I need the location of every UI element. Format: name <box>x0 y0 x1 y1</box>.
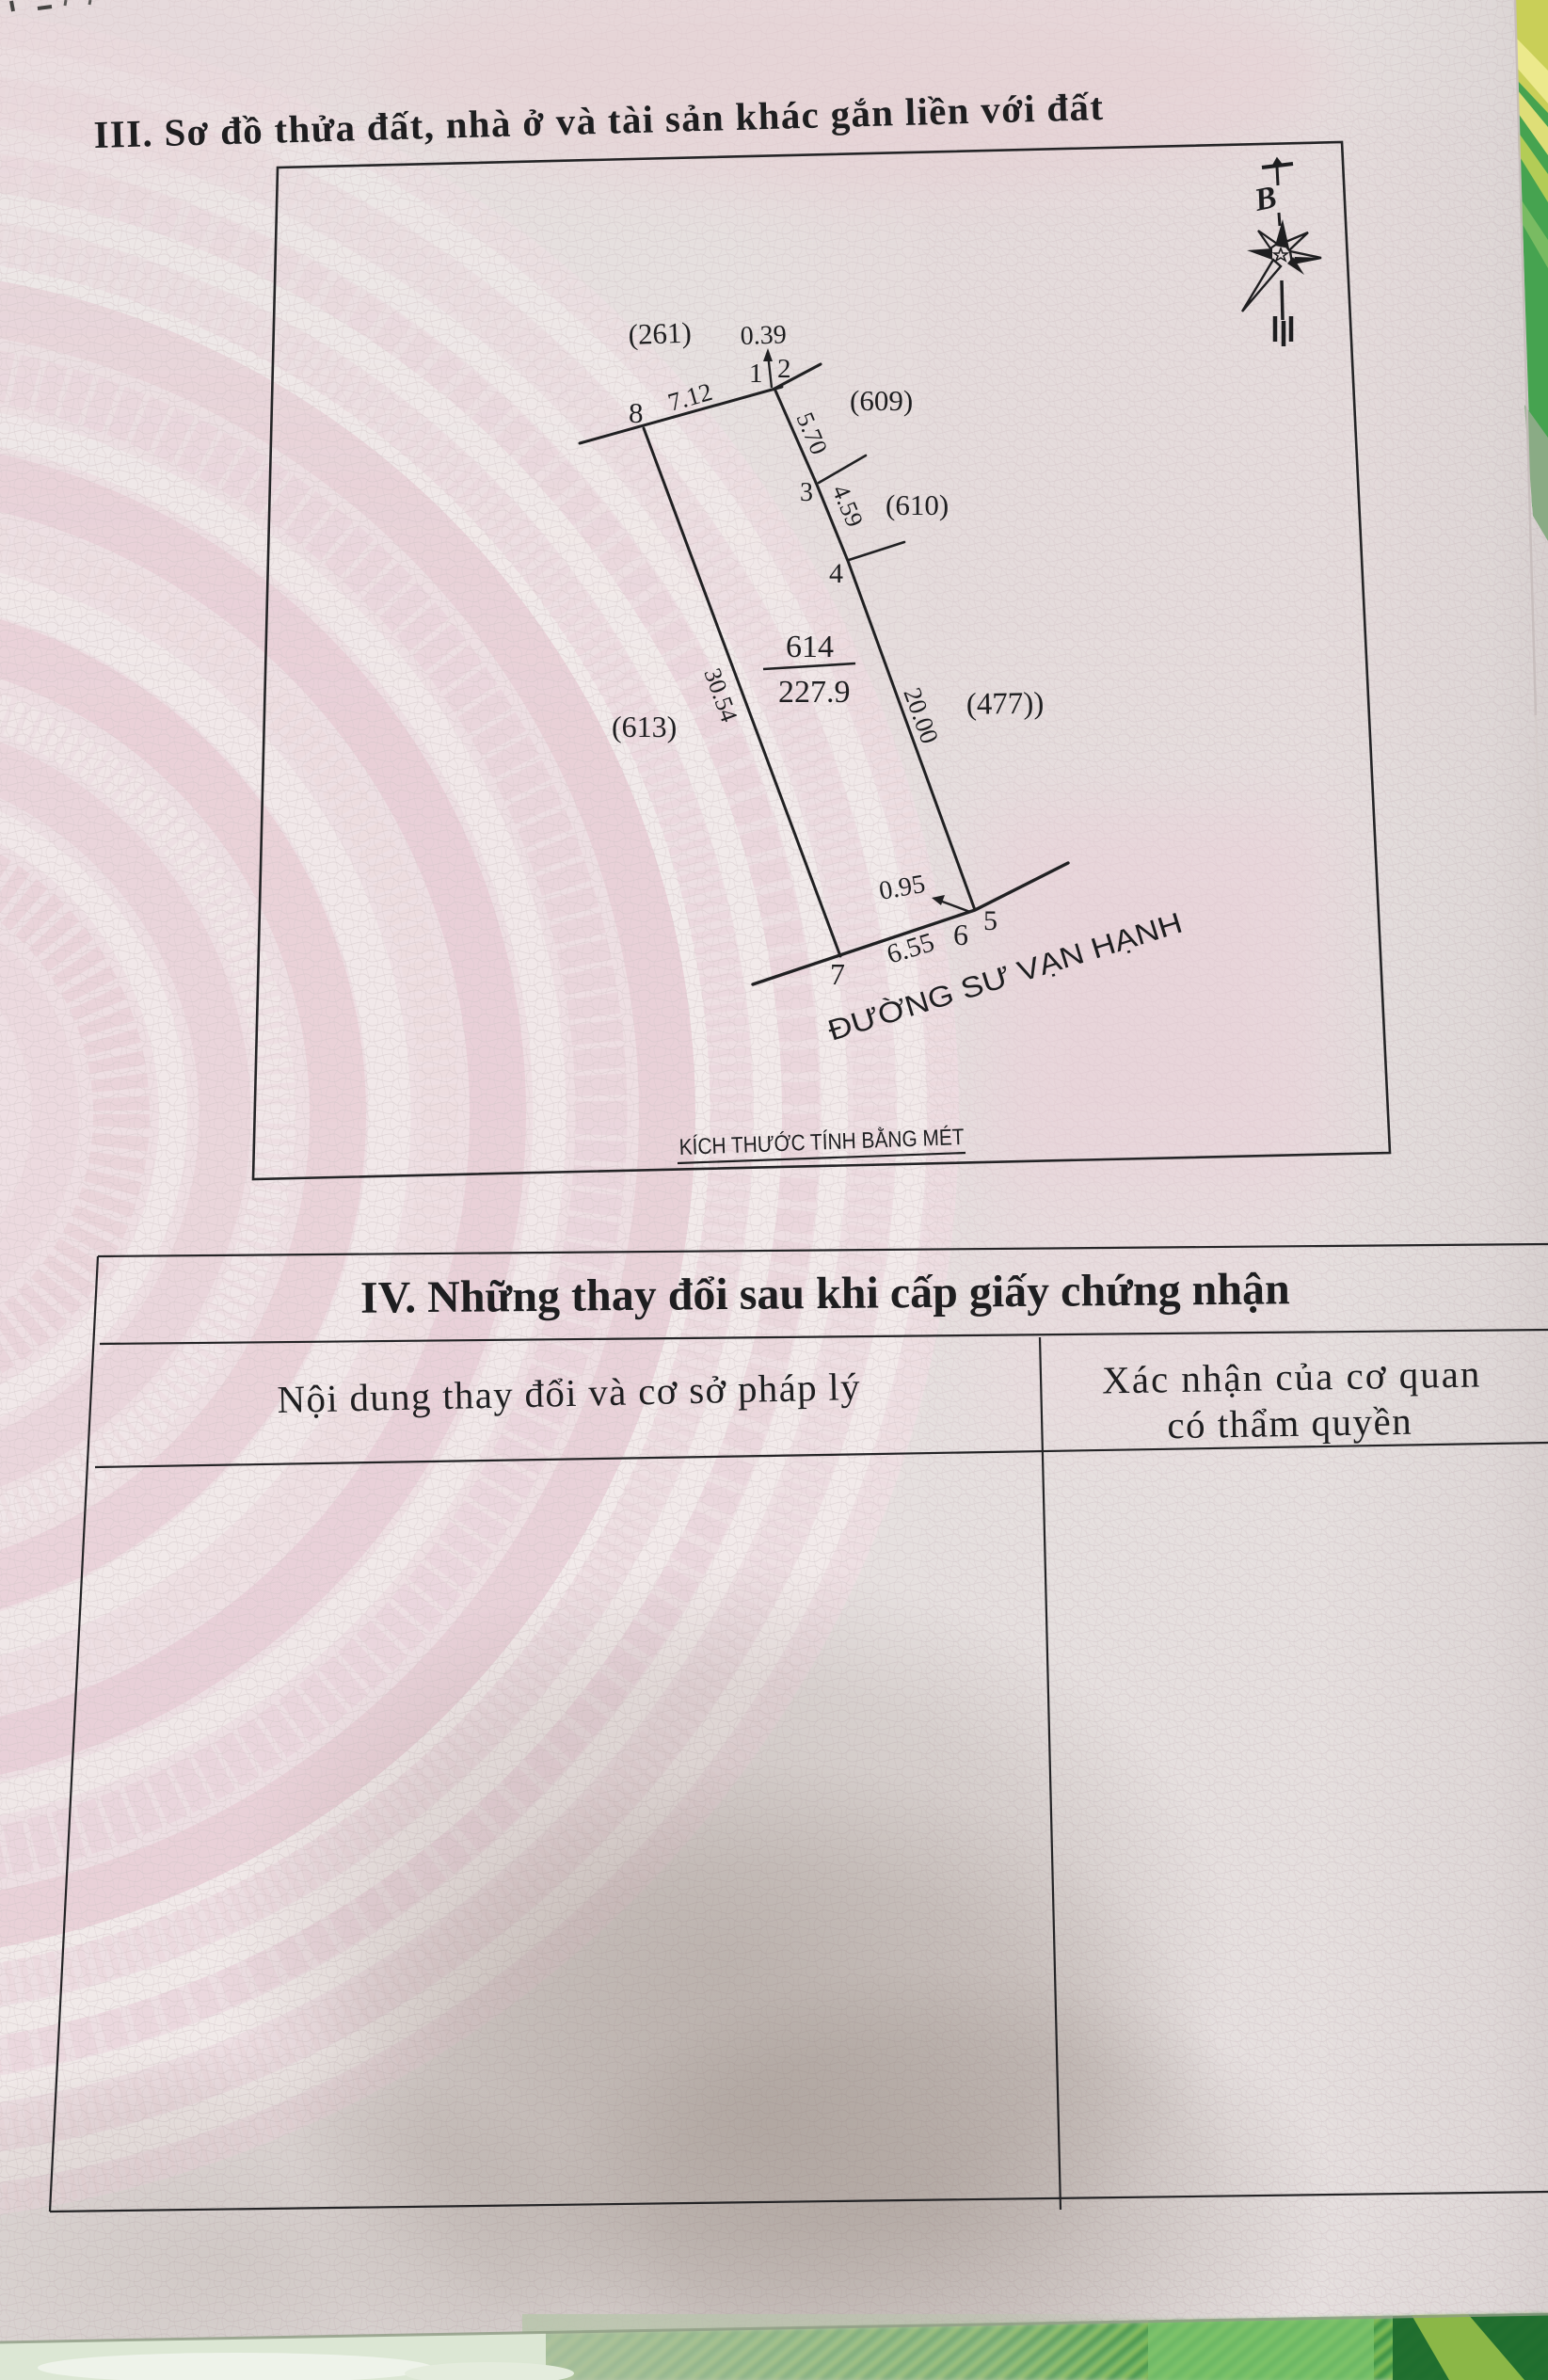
svg-text:8: 8 <box>629 396 644 429</box>
svg-text:IV. Những thay đổi sau khi cấp: IV. Những thay đổi sau khi cấp giấy chứn… <box>360 1264 1290 1322</box>
svg-text:có thẩm quyền: có thẩm quyền <box>1167 1399 1413 1447</box>
svg-text:3: 3 <box>800 478 813 507</box>
svg-text:(613): (613) <box>612 710 677 743</box>
svg-text:7: 7 <box>830 957 845 991</box>
svg-text:(609): (609) <box>850 384 913 417</box>
svg-text:Xác nhận của cơ quan: Xác nhận của cơ quan <box>1102 1351 1482 1401</box>
svg-text:6: 6 <box>953 918 968 951</box>
svg-text:0.39: 0.39 <box>740 320 787 351</box>
svg-text:(261): (261) <box>628 316 692 351</box>
svg-text:(610): (610) <box>886 488 949 521</box>
svg-text:1: 1 <box>749 359 763 389</box>
svg-text:227.9: 227.9 <box>778 675 851 710</box>
svg-text:5: 5 <box>983 905 997 936</box>
svg-text:614: 614 <box>786 630 834 664</box>
svg-text:4: 4 <box>829 558 843 589</box>
svg-text:(477)): (477)) <box>966 687 1045 722</box>
svg-text:2: 2 <box>777 354 791 384</box>
